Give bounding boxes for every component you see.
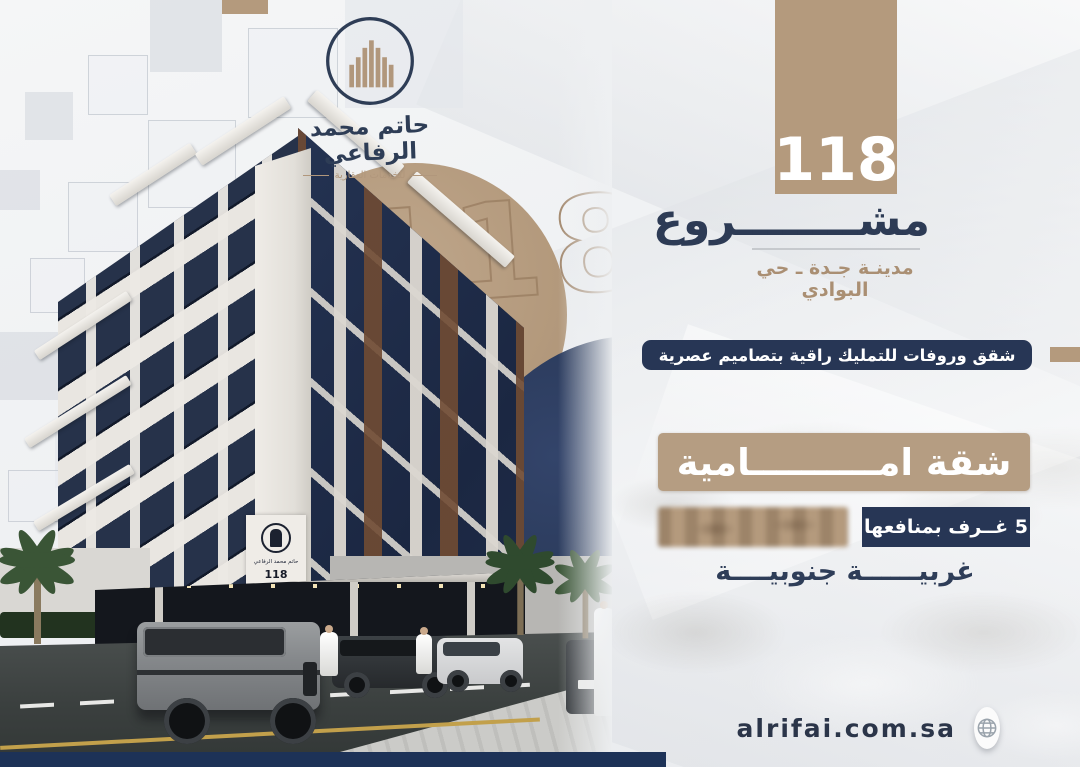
wheel bbox=[270, 698, 316, 744]
wheel bbox=[344, 672, 370, 698]
wheel bbox=[500, 670, 522, 692]
unit-title-banner: شقة امــــــــــامية bbox=[658, 433, 1030, 491]
company-tagline: للخدمات العقارية bbox=[268, 170, 472, 181]
divider-line bbox=[752, 248, 920, 250]
orientation-text: غربيــــــة جنوبيــــة bbox=[700, 556, 990, 587]
website-row: alrifai.com.sa bbox=[740, 704, 1000, 752]
decor-square bbox=[88, 55, 148, 115]
project-word: مشــــــــروع bbox=[740, 196, 930, 247]
company-logo: حاتم محمد الرفاعي للخدمات العقارية bbox=[268, 14, 472, 164]
person-figure bbox=[416, 634, 432, 674]
website-link[interactable]: alrifai.com.sa bbox=[737, 714, 956, 743]
palm-tree bbox=[0, 520, 92, 650]
tan-accent-bar bbox=[1050, 347, 1080, 362]
tagline-banner: شقق وروفات للتمليك راقية بتصاميم عصرية bbox=[642, 340, 1032, 370]
decor-square bbox=[150, 0, 222, 72]
globe-icon bbox=[974, 707, 1000, 749]
redacted-price bbox=[658, 507, 848, 547]
person-figure bbox=[320, 632, 338, 676]
rooms-badge: 5 غــرف بمنافعها bbox=[862, 507, 1030, 547]
building-sign-number: 118 bbox=[246, 568, 306, 581]
photo-edge-fade bbox=[558, 0, 612, 752]
building-sign-name: حاتم محمد الرفاعي bbox=[246, 559, 306, 565]
project-number-block: 118 bbox=[775, 0, 897, 194]
gray-suv bbox=[137, 622, 320, 710]
project-location: مدينـة جـدة ـ حي البوادي bbox=[728, 257, 942, 301]
building-sign-logo-icon bbox=[261, 523, 291, 553]
bottom-navy-bar bbox=[0, 752, 666, 767]
decor-square bbox=[25, 92, 73, 140]
wheel bbox=[447, 670, 469, 692]
company-name: حاتم محمد الرفاعي bbox=[267, 110, 473, 169]
wheel bbox=[164, 698, 210, 744]
decor-square bbox=[222, 0, 268, 14]
real-estate-poster: 118 حاتم محمد الرفاعي 118 bbox=[0, 0, 1080, 767]
building-tower-icon bbox=[323, 14, 417, 108]
decor-square bbox=[0, 170, 40, 210]
